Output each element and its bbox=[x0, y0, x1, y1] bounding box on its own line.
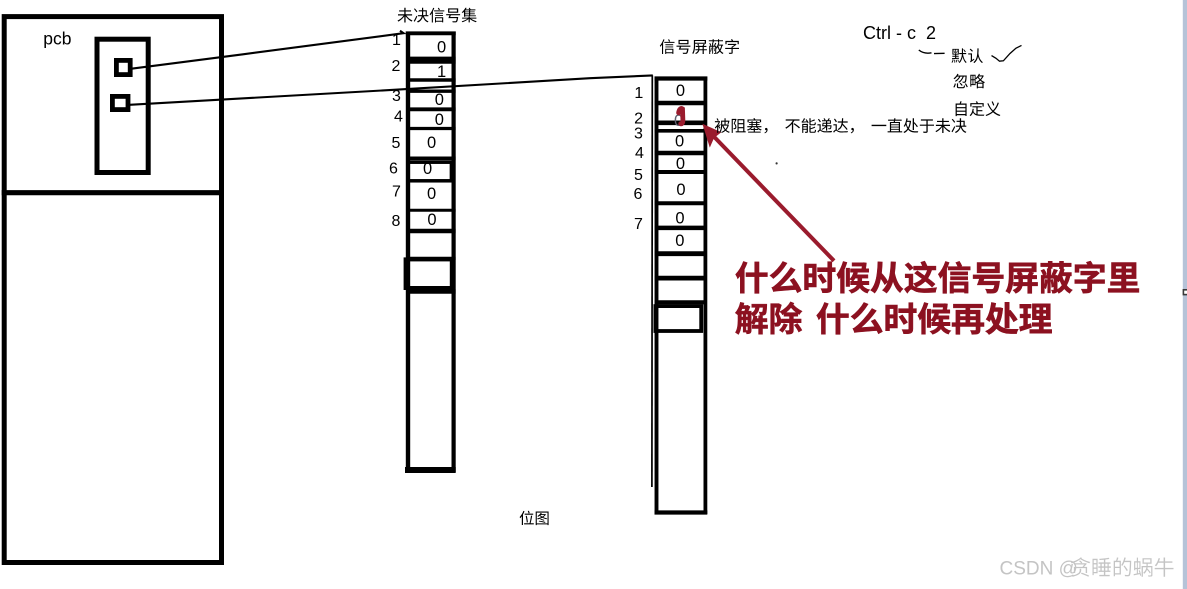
svg-text:6: 6 bbox=[389, 161, 398, 178]
svg-text:1: 1 bbox=[392, 32, 401, 49]
svg-text:0: 0 bbox=[676, 155, 685, 173]
svg-text:0: 0 bbox=[675, 133, 684, 151]
svg-text:5: 5 bbox=[634, 167, 643, 184]
svg-text:0: 0 bbox=[676, 181, 685, 199]
svg-text:4: 4 bbox=[635, 145, 644, 162]
svg-text:1: 1 bbox=[634, 85, 643, 102]
svg-text:0: 0 bbox=[435, 111, 444, 129]
svg-text:7: 7 bbox=[634, 216, 643, 233]
svg-text:pcb: pcb bbox=[43, 29, 71, 49]
svg-text:CSDN @: CSDN @ bbox=[1000, 559, 1078, 580]
svg-text:0: 0 bbox=[427, 185, 436, 203]
svg-text:6: 6 bbox=[634, 186, 643, 203]
svg-text:0: 0 bbox=[675, 209, 684, 227]
svg-text:0: 0 bbox=[676, 82, 685, 100]
svg-text:0: 0 bbox=[427, 211, 436, 229]
svg-text:0: 0 bbox=[437, 38, 446, 56]
svg-text:3: 3 bbox=[392, 88, 401, 105]
svg-text:3: 3 bbox=[634, 126, 643, 143]
svg-text:0: 0 bbox=[427, 134, 436, 152]
svg-text:0: 0 bbox=[423, 160, 432, 178]
svg-text:8: 8 bbox=[392, 213, 401, 230]
svg-text:4: 4 bbox=[394, 109, 403, 126]
svg-text:0: 0 bbox=[675, 232, 684, 250]
svg-text:1: 1 bbox=[437, 63, 446, 81]
svg-text:7: 7 bbox=[392, 184, 401, 201]
svg-text:Ctrl - c 2: Ctrl - c 2 bbox=[863, 23, 936, 43]
svg-text:0: 0 bbox=[435, 91, 444, 109]
svg-text:2: 2 bbox=[392, 58, 401, 75]
svg-text:5: 5 bbox=[392, 135, 401, 152]
